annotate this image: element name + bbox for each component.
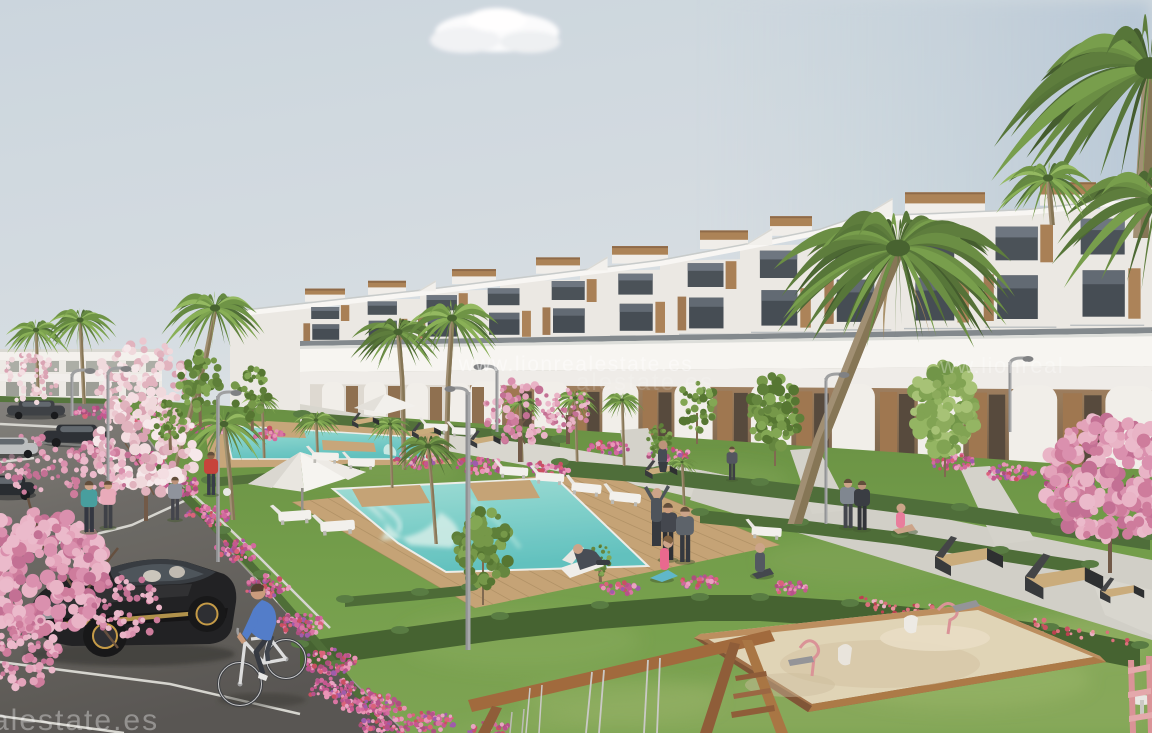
svg-text:ww.lionreal: ww.lionreal [939,353,1064,378]
svg-text:alestate.es: alestate.es [0,704,159,733]
svg-text:alestate.es: alestate.es [576,369,714,396]
